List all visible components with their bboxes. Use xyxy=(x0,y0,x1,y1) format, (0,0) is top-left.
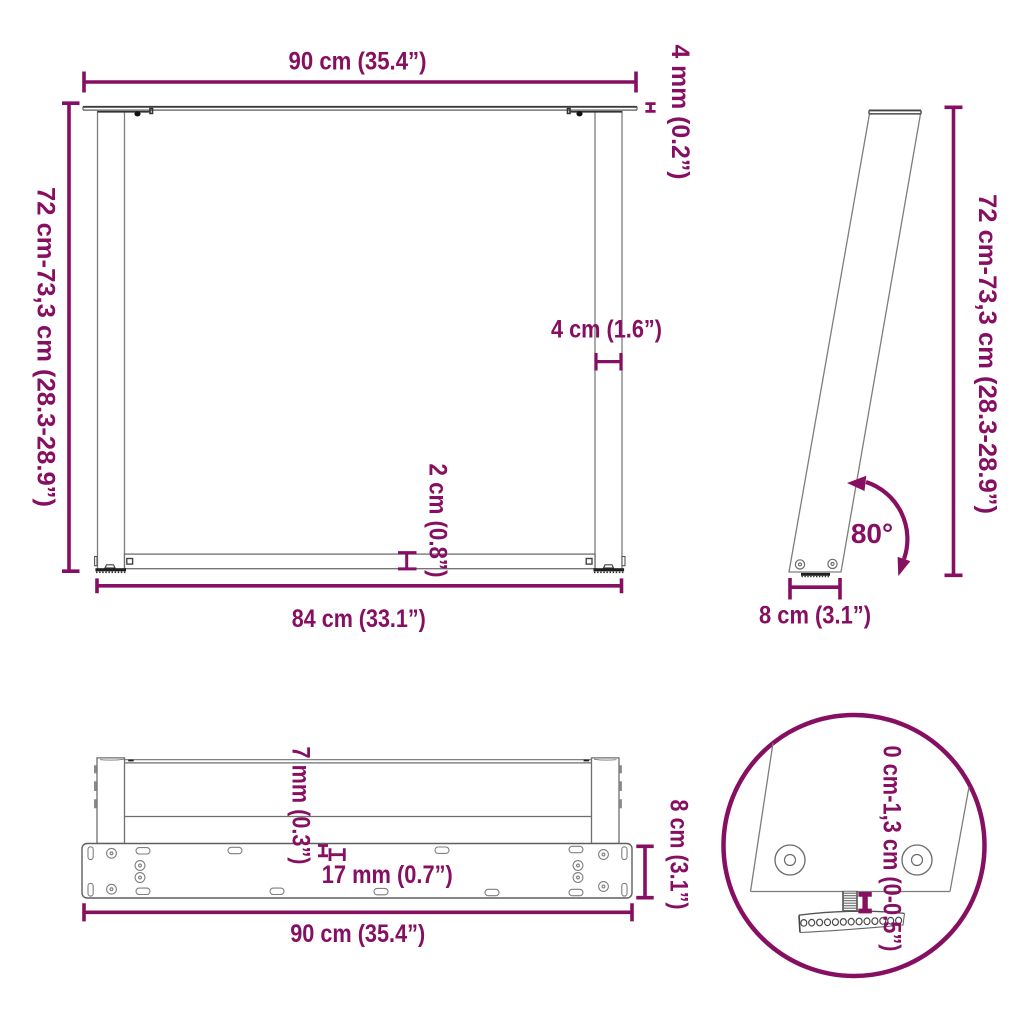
svg-text:72 cm-73,3 cm (28.3-28.9”): 72 cm-73,3 cm (28.3-28.9”) xyxy=(973,194,1001,514)
svg-text:80°: 80° xyxy=(851,518,893,549)
svg-text:17 mm (0.7”): 17 mm (0.7”) xyxy=(322,861,453,889)
svg-text:72 cm-73,3 cm (28.3-28.9”): 72 cm-73,3 cm (28.3-28.9”) xyxy=(32,187,60,507)
svg-text:8 cm (3.1”): 8 cm (3.1”) xyxy=(665,800,693,910)
svg-text:4 mm (0.2”): 4 mm (0.2”) xyxy=(666,45,694,180)
svg-text:8 cm (3.1”): 8 cm (3.1”) xyxy=(759,602,871,630)
svg-text:4 cm (1.6”): 4 cm (1.6”) xyxy=(551,316,662,344)
svg-text:90 cm (35.4”): 90 cm (35.4”) xyxy=(289,48,427,76)
svg-text:0 cm-1,3 cm (0-0.5”): 0 cm-1,3 cm (0-0.5”) xyxy=(878,746,906,952)
svg-text:90 cm (35.4”): 90 cm (35.4”) xyxy=(290,920,425,948)
svg-text:2 cm (0.8”): 2 cm (0.8”) xyxy=(424,464,452,578)
svg-text:84 cm (33.1”): 84 cm (33.1”) xyxy=(292,605,426,633)
svg-text:7 mm (0.3”): 7 mm (0.3”) xyxy=(287,747,315,865)
